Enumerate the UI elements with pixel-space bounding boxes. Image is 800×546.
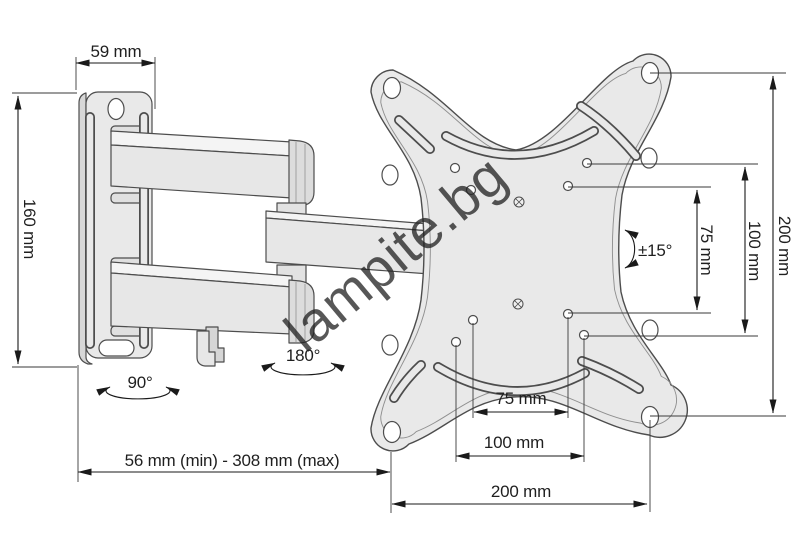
- label-vesa-v100: 100 mm: [745, 221, 764, 281]
- label-swivel-180: 180°: [286, 346, 320, 365]
- cable-clip-hook: [197, 327, 224, 366]
- technical-drawing-page: lampite.bg 59 mm 160: [0, 0, 800, 546]
- label-tilt-range: ±15°: [638, 241, 672, 260]
- label-swivel-90: 90°: [127, 373, 152, 392]
- mount-dimension-diagram: lampite.bg 59 mm 160: [0, 0, 800, 546]
- label-vesa-v75: 75 mm: [697, 225, 716, 276]
- label-wall-plate-width: 59 mm: [91, 42, 142, 61]
- label-wall-plate-height: 160 mm: [20, 199, 39, 259]
- wall-plate-bottom-slot: [99, 340, 134, 356]
- label-vesa-h75: 75 mm: [496, 389, 547, 408]
- label-extension-range: 56 mm (min) - 308 mm (max): [125, 451, 340, 470]
- label-vesa-h200: 200 mm: [491, 482, 551, 501]
- wall-plate-top-hole: [108, 99, 124, 120]
- tilt-15-arc: [625, 230, 635, 268]
- label-vesa-v200: 200 mm: [775, 216, 794, 276]
- upper-arm-hinge-sleeve: [289, 140, 314, 206]
- label-vesa-h100: 100 mm: [484, 433, 544, 452]
